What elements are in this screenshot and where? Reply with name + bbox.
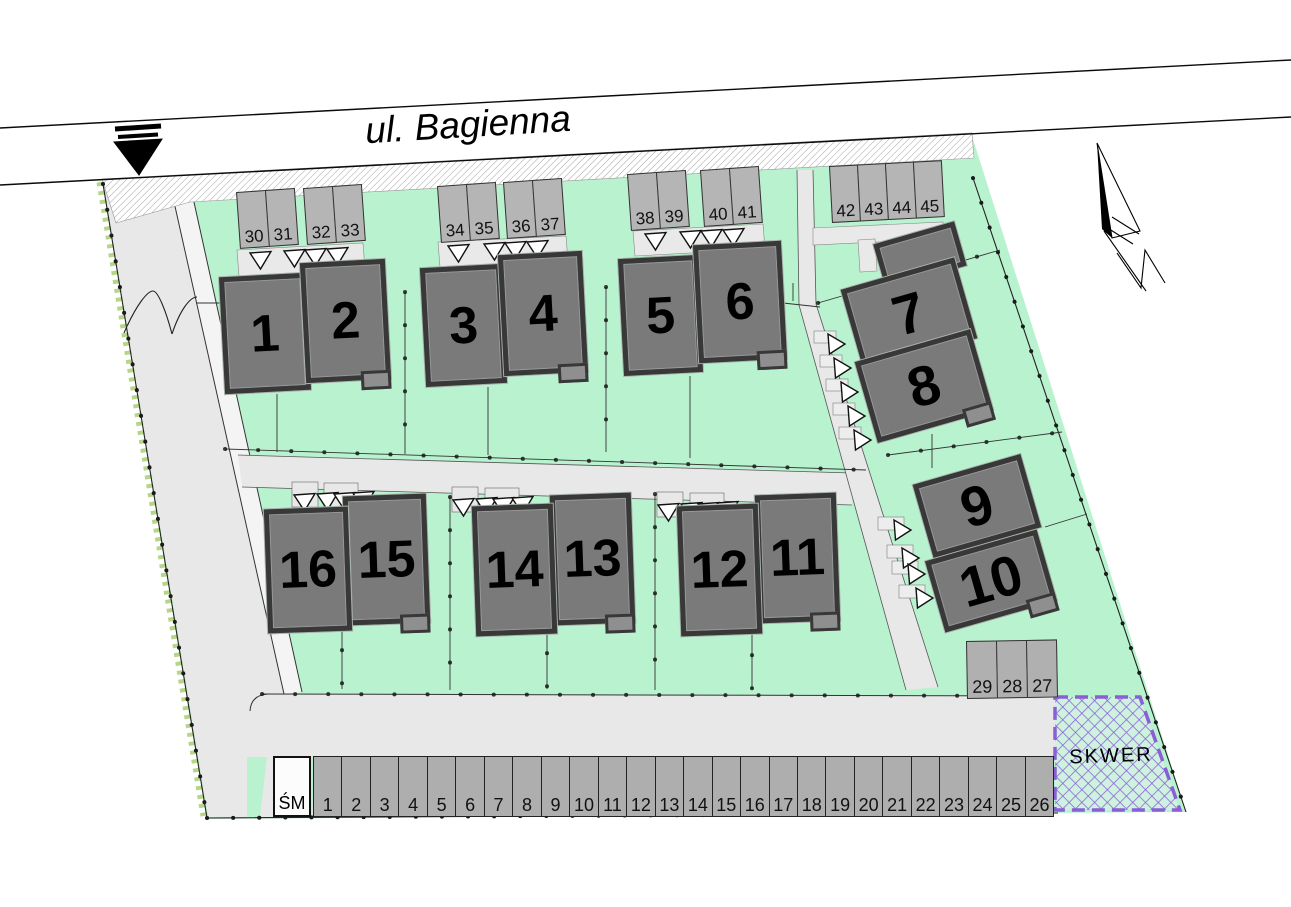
parking-stall: 13 [655,756,684,817]
building-step [757,350,788,371]
parking-stall: 4 [398,756,427,817]
building-15: 15 [343,494,430,626]
parking-stall: 3 [370,756,399,817]
building-step [400,614,431,634]
building-6: 6 [693,241,787,363]
parking-stall: 44 [885,162,917,220]
building-step [810,612,841,632]
parking-stall: 6 [455,756,484,817]
parking-stall: 12 [626,756,655,817]
parking-stall: 19 [825,756,854,817]
building-step [361,370,392,391]
building-11: 11 [755,493,840,624]
parking-stall: 27 [1026,639,1058,698]
parking-stall: 18 [797,756,826,817]
parking-stall: 35 [466,182,500,241]
trash-enclosure: ŚM [273,756,311,817]
parking-group-38-39: 3839 [628,170,690,231]
building-14: 14 [472,504,557,637]
parking-stall: 22 [911,756,940,817]
parking-stall: 2 [341,756,370,817]
street-direction-arrow-icon [114,126,162,175]
parking-stall: 26 [1025,756,1054,817]
building-step [558,363,589,384]
building-3: 3 [420,264,507,387]
parking-stall: 25 [996,756,1025,817]
parking-stall: 28 [996,640,1028,699]
parking-stall: 43 [857,163,889,221]
building-13: 13 [550,493,635,626]
parking-stall: 8 [512,756,541,817]
building-12: 12 [677,504,762,637]
parking-stall: 16 [740,756,769,817]
parking-stall: 24 [968,756,997,817]
parking-stall: 37 [532,178,566,237]
parking-group-40-41: 4041 [701,166,763,227]
parking-stall: 39 [656,170,690,229]
parking-stall: 29 [966,640,998,699]
parking-stall: 42 [829,165,861,223]
parking-stall: 10 [569,756,598,817]
parking-stall: 11 [598,756,627,817]
parking-stall: 9 [541,756,570,817]
parking-stall: 7 [484,756,513,817]
building-1: 1 [219,273,311,394]
parking-group-32-33: 3233 [304,184,366,245]
parking-stall: 41 [729,166,763,225]
building-4: 4 [498,251,588,376]
building-5: 5 [618,255,703,376]
parking-stall: 20 [854,756,883,817]
parking-row-bottom: 1234567891011121314151617181920212223242… [314,756,1054,817]
parking-stall: 17 [769,756,798,817]
north-arrow-icon [1097,143,1165,291]
parking-stall: 21 [882,756,911,817]
parking-stall: 1 [313,756,342,817]
parking-stall: 31 [265,188,299,247]
parking-stall: 45 [913,160,945,218]
parking-group-42-45: 42434445 [830,160,945,223]
parking-group-30-31: 3031 [237,188,299,249]
parking-group-36-37: 3637 [504,178,566,239]
parking-stall: 33 [332,184,366,243]
building-16: 16 [264,507,352,634]
building-step [605,614,636,634]
site-plan: ul. Bagienna 1 2 3 4 5 6 7 8 9 10 11 12 … [0,0,1291,907]
parking-group-34-35: 3435 [438,182,500,243]
parking-group-27-29: 292827 [967,639,1058,699]
skwer-label: SKWER [1063,743,1160,769]
parking-stall: 23 [939,756,968,817]
parking-stall: 14 [683,756,712,817]
parking-stall: 15 [712,756,741,817]
building-2: 2 [300,259,391,383]
parking-stall: 5 [427,756,456,817]
